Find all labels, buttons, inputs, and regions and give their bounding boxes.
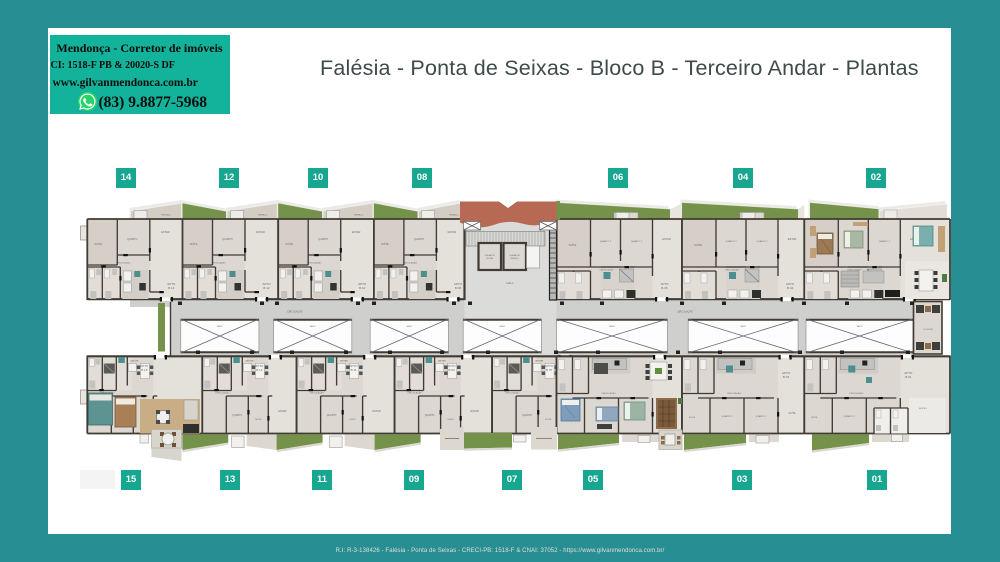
svg-text:CIRCULAÇÃO: CIRCULAÇÃO (725, 269, 740, 272)
svg-text:ESTAR: ESTAR (278, 410, 286, 413)
svg-text:QUARTO: QUARTO (232, 414, 242, 417)
svg-text:TERRAÇO: TERRAÇO (161, 214, 171, 217)
svg-text:CIRCULAÇÃO: CIRCULAÇÃO (407, 392, 422, 395)
svg-text:QUARTO 1: QUARTO 1 (756, 240, 768, 243)
svg-text:SUÍTE: SUÍTE (569, 243, 577, 247)
svg-text:VAZIO: VAZIO (499, 325, 505, 328)
svg-text:JANTAR: JANTAR (437, 360, 446, 363)
svg-text:ESTAR: ESTAR (256, 230, 265, 234)
svg-text:QUARTO: QUARTO (318, 238, 328, 241)
svg-text:CIRCULAÇÃO: CIRCULAÇÃO (677, 311, 693, 314)
svg-text:B 11: B 11 (351, 368, 357, 372)
svg-text:B 14: B 14 (168, 286, 175, 290)
svg-text:CIRCULAÇÃO: CIRCULAÇÃO (505, 392, 520, 395)
svg-text:B 10: B 10 (359, 286, 366, 290)
svg-text:CIRCULAÇÃO: CIRCULAÇÃO (307, 262, 322, 265)
svg-text:QUARTO 2: QUARTO 2 (844, 415, 856, 418)
svg-text:QUARTO: QUARTO (425, 414, 435, 417)
svg-text:QUARTO: QUARTO (414, 238, 424, 241)
svg-text:SUÍTE: SUÍTE (447, 418, 454, 421)
svg-text:SOCIAL: SOCIAL (486, 257, 493, 260)
svg-text:B 06: B 06 (661, 286, 668, 290)
svg-text:SERVIÇO: SERVIÇO (511, 258, 520, 260)
svg-text:ESTAR: ESTAR (662, 237, 671, 241)
svg-text:QUARTO: QUARTO (327, 414, 337, 417)
svg-text:CIRCULAÇÃO: CIRCULAÇÃO (601, 392, 616, 395)
svg-text:B 04: B 04 (787, 286, 794, 290)
svg-text:VAZIO: VAZIO (406, 325, 412, 328)
svg-text:QUARTO: QUARTO (127, 238, 137, 241)
svg-text:VAZIO: VAZIO (310, 325, 316, 328)
svg-text:SUÍTE: SUÍTE (285, 242, 293, 246)
svg-text:B 09: B 09 (449, 368, 456, 372)
svg-text:CIRCULAÇÃO: CIRCULAÇÃO (309, 392, 324, 395)
svg-text:VAZIO: VAZIO (857, 325, 863, 328)
svg-text:QUARTO: QUARTO (222, 238, 232, 241)
svg-text:ESTAR: ESTAR (373, 410, 381, 413)
svg-text:ELEVADOR: ELEVADOR (510, 254, 521, 257)
svg-text:QUARTO 2: QUARTO 2 (721, 415, 733, 418)
svg-text:ESTAR: ESTAR (788, 237, 797, 241)
svg-text:CIRCULAÇÃO: CIRCULAÇÃO (211, 262, 226, 265)
svg-text:CIRCULAÇÃO: CIRCULAÇÃO (403, 262, 418, 265)
svg-text:QUARTO: QUARTO (522, 414, 532, 417)
svg-text:JANTAR: JANTAR (339, 360, 348, 363)
svg-text:SUÍTE: SUÍTE (689, 416, 696, 419)
svg-text:QUARTO 1: QUARTO 1 (631, 240, 643, 243)
svg-text:QUARTO 2: QUARTO 2 (600, 240, 612, 243)
svg-text:SUÍTE: SUÍTE (381, 242, 389, 246)
svg-text:CIRCULAÇÃO: CIRCULAÇÃO (215, 392, 230, 395)
svg-text:JANTAR: JANTAR (245, 360, 254, 363)
svg-text:HALL: HALL (506, 281, 514, 285)
svg-text:B 01: B 01 (905, 375, 912, 379)
svg-text:B 07: B 07 (546, 368, 553, 372)
svg-text:ESTAR: ESTAR (448, 230, 457, 234)
svg-text:QUARTO 2: QUARTO 2 (725, 240, 737, 243)
svg-text:SUÍTE: SUÍTE (94, 242, 102, 246)
svg-text:VAZIO: VAZIO (217, 325, 223, 328)
svg-text:SUÍTE: SUÍTE (788, 412, 795, 415)
svg-text:CO-WORK: CO-WORK (923, 329, 934, 331)
svg-text:CIRCULAÇÃO: CIRCULAÇÃO (599, 269, 614, 272)
svg-text:B 08: B 08 (455, 286, 462, 290)
svg-text:ESTAR: ESTAR (352, 230, 361, 234)
svg-text:SUÍTE: SUÍTE (545, 418, 552, 421)
svg-text:TERRAÇO: TERRAÇO (449, 214, 459, 217)
svg-text:ELEVADOR: ELEVADOR (485, 254, 496, 257)
svg-text:B 13: B 13 (256, 368, 263, 372)
svg-text:CIRCULAÇÃO: CIRCULAÇÃO (287, 311, 303, 314)
svg-text:SUÍTE 1: SUÍTE 1 (919, 407, 928, 410)
svg-text:QUARTO 1: QUARTO 1 (755, 415, 767, 418)
svg-text:ESTAR: ESTAR (161, 230, 170, 234)
svg-text:B 15: B 15 (141, 368, 148, 372)
svg-text:CIRCULAÇÃO: CIRCULAÇÃO (849, 392, 864, 395)
svg-text:CIRCULAÇÃO: CIRCULAÇÃO (116, 262, 131, 265)
svg-text:SUÍTE: SUÍTE (349, 418, 356, 421)
svg-text:JANTAR: JANTAR (130, 360, 139, 363)
svg-text:SUÍTE: SUÍTE (694, 243, 702, 247)
svg-text:SUÍTE: SUÍTE (811, 416, 818, 419)
svg-text:SUÍTE: SUÍTE (255, 418, 262, 421)
svg-text:B 03: B 03 (783, 375, 790, 379)
svg-text:JANTAR: JANTAR (535, 360, 544, 363)
svg-text:TERRAÇO: TERRAÇO (258, 214, 268, 217)
svg-text:VAZIO: VAZIO (740, 325, 746, 328)
svg-text:CIRCULAÇÃO: CIRCULAÇÃO (727, 392, 742, 395)
svg-text:QUARTO 1: QUARTO 1 (879, 240, 891, 243)
svg-text:B 12: B 12 (263, 286, 270, 290)
svg-text:VAZIO: VAZIO (609, 325, 615, 328)
svg-text:SUÍTE: SUÍTE (190, 242, 198, 246)
svg-text:ESTAR: ESTAR (471, 410, 479, 413)
svg-text:TERRAÇO: TERRAÇO (354, 214, 364, 217)
